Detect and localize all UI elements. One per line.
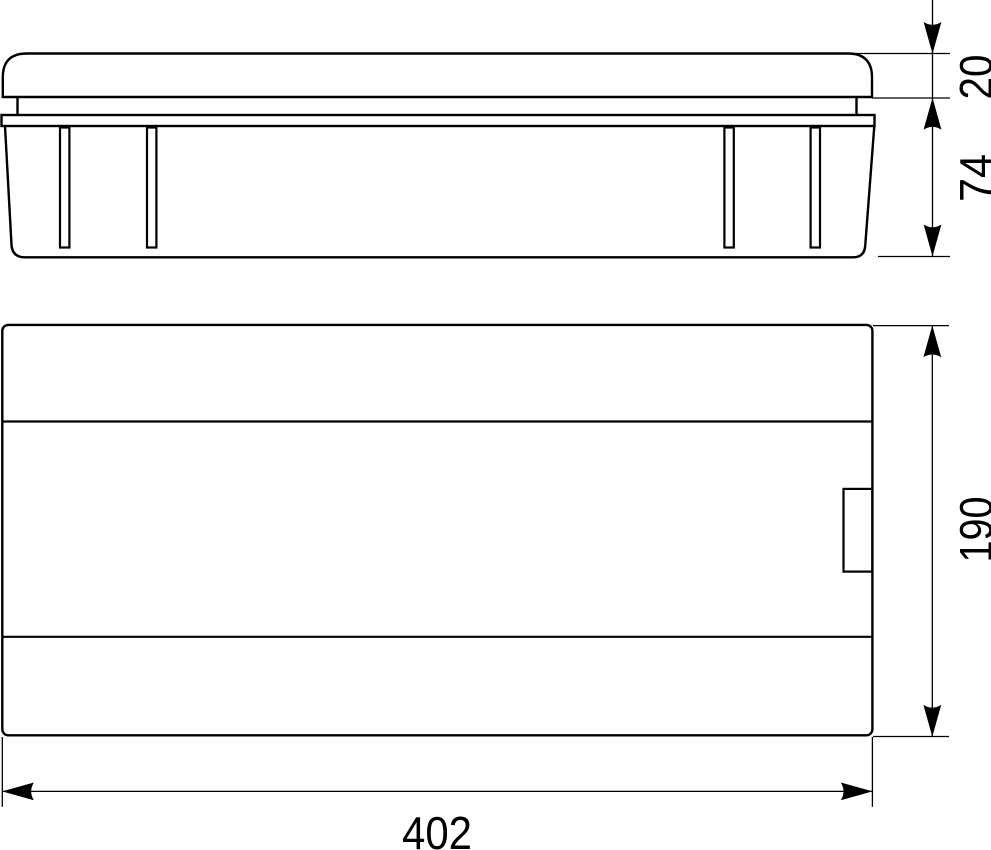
svg-text:74: 74 — [950, 154, 991, 202]
svg-text:402: 402 — [402, 807, 472, 850]
svg-text:20: 20 — [950, 55, 991, 100]
svg-text:190: 190 — [950, 497, 991, 563]
